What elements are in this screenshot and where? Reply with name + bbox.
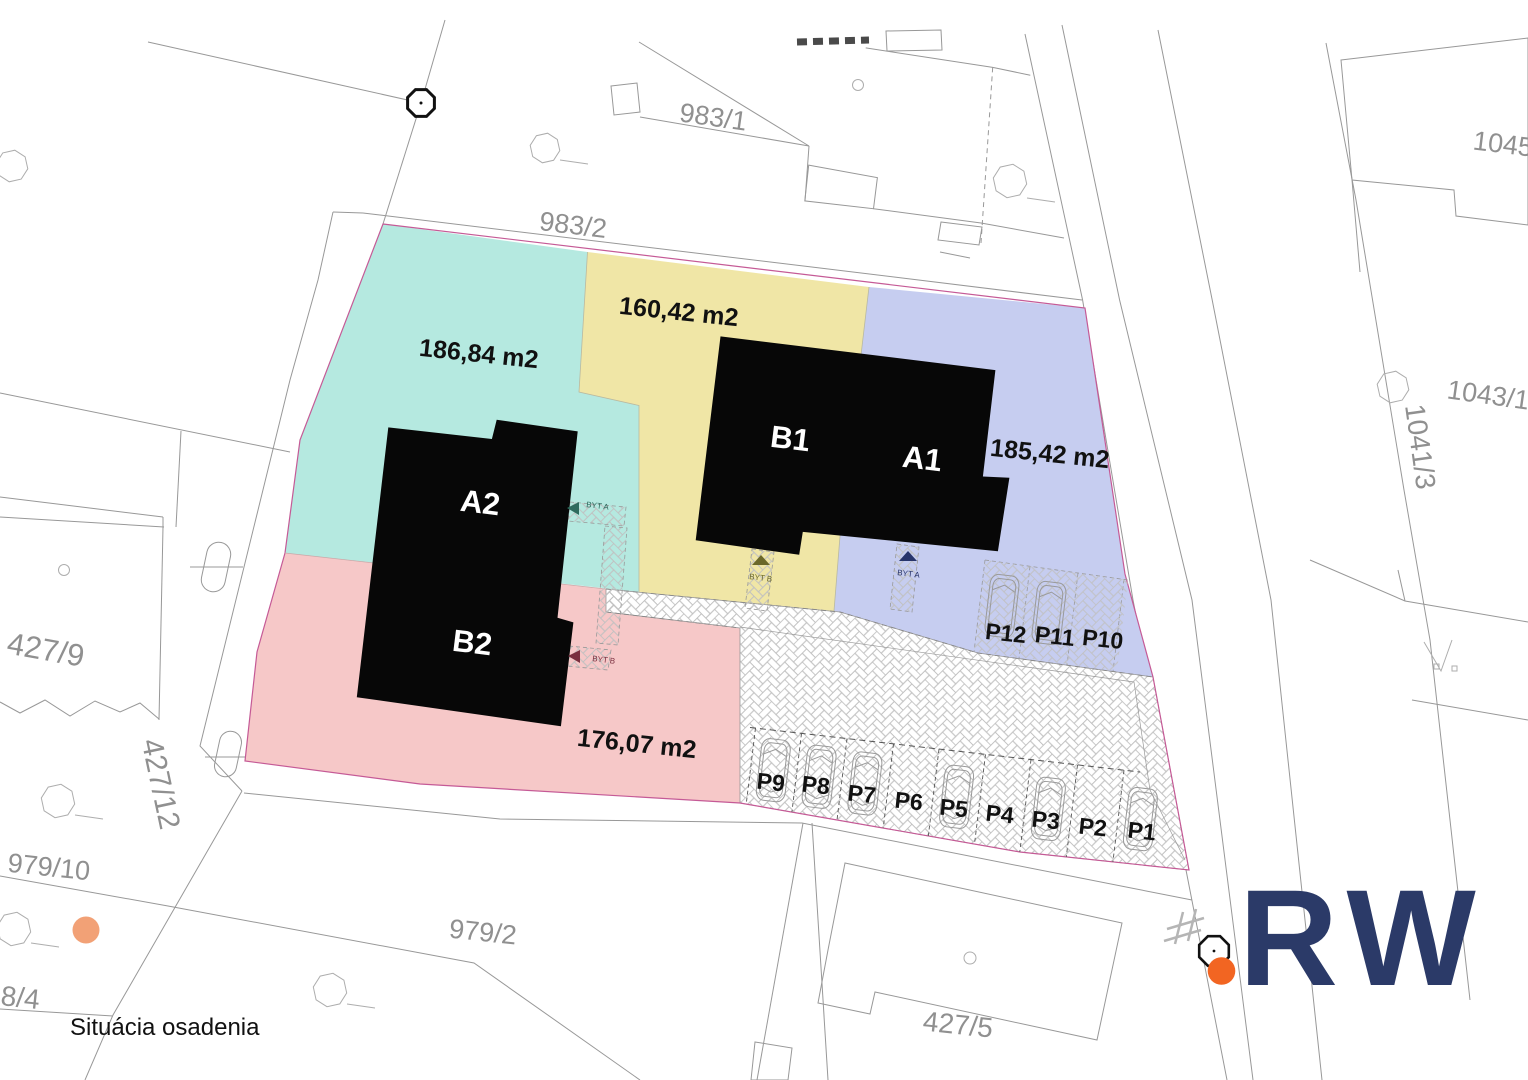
svg-text:P1: P1 xyxy=(1126,817,1157,846)
svg-text:B2: B2 xyxy=(450,623,494,663)
svg-text:P11: P11 xyxy=(1034,621,1076,651)
svg-text:P12: P12 xyxy=(984,618,1027,648)
svg-text:Situácia osadenia: Situácia osadenia xyxy=(70,1014,260,1041)
svg-text:RW: RW xyxy=(1239,862,1487,1015)
svg-text:B1: B1 xyxy=(768,419,812,459)
svg-text:P2: P2 xyxy=(1077,813,1108,842)
svg-text:8/4: 8/4 xyxy=(0,980,41,1015)
svg-text:P5: P5 xyxy=(938,794,969,823)
svg-text:P4: P4 xyxy=(984,800,1015,829)
svg-text:P10: P10 xyxy=(1081,624,1124,654)
svg-text:P6: P6 xyxy=(893,787,924,816)
svg-text:P9: P9 xyxy=(755,768,786,797)
svg-text:P3: P3 xyxy=(1030,806,1061,835)
svg-text:A2: A2 xyxy=(458,483,502,523)
svg-text:P7: P7 xyxy=(846,780,877,809)
svg-text:P8: P8 xyxy=(800,771,831,800)
svg-text:A1: A1 xyxy=(900,439,944,479)
